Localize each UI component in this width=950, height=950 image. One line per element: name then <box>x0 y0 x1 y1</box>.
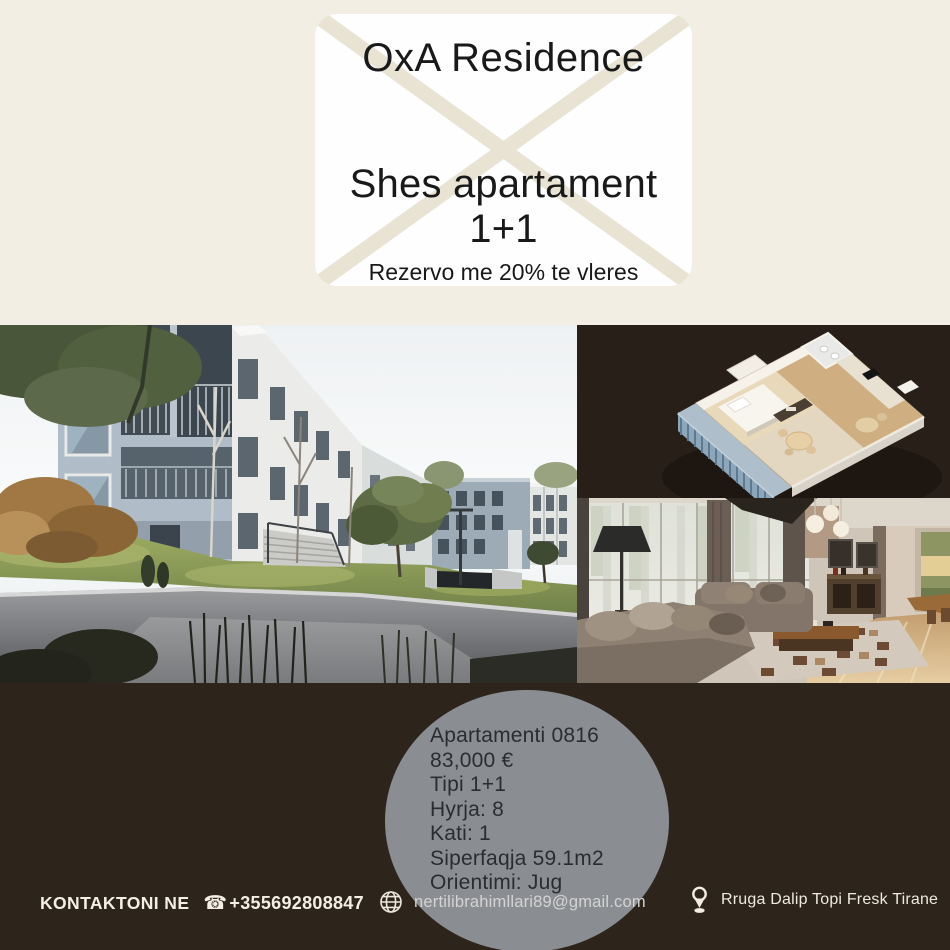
floor-plan-illustration <box>577 325 950 498</box>
phone-number: ☎ +355692808847 <box>203 892 364 915</box>
header-section: OxA Residence Shes apartament 1+1 Rezerv… <box>0 0 950 325</box>
building-exterior-photo <box>0 325 577 683</box>
headline: Shes apartament 1+1 <box>315 162 692 252</box>
listing-type: Tipi 1+1 <box>430 773 604 798</box>
location-pin-icon <box>690 886 709 914</box>
photo-right-column <box>577 325 950 683</box>
living-room-photo <box>577 498 950 683</box>
globe-icon <box>379 890 403 914</box>
envelope-graphic: OxA Residence Shes apartament 1+1 Rezerv… <box>315 14 692 286</box>
email-address: nertilibrahimllari89@gmail.com <box>414 893 646 912</box>
floor-plan-image <box>577 325 950 498</box>
contact-label: KONTAKTONI NE <box>40 893 189 914</box>
brand-title: OxA Residence <box>315 36 692 81</box>
listing-area: Siperfaqja 59.1m2 <box>430 847 604 872</box>
listing-details-text: Apartamenti 0816 83,000 € Tipi 1+1 Hyrja… <box>430 724 604 896</box>
listing-entrance: Hyrja: 8 <box>430 798 604 823</box>
listing-floor: Kati: 1 <box>430 822 604 847</box>
listing-unit: Apartamenti 0816 <box>430 724 604 749</box>
contact-phone-group: KONTAKTONI NE ☎ +355692808847 <box>40 892 364 915</box>
building-exterior-illustration <box>0 325 577 683</box>
phone-number-text: +355692808847 <box>229 893 364 914</box>
phone-icon: ☎ <box>203 892 227 915</box>
photo-collage <box>0 325 950 683</box>
listing-price: 83,000 € <box>430 749 604 774</box>
contact-address-group: Rruga Dalip Topi Fresk Tirane <box>690 886 938 914</box>
promo-text: Rezervo me 20% te vleres <box>315 259 692 286</box>
contact-email-group: nertilibrahimllari89@gmail.com <box>379 890 646 914</box>
footer-section: Apartamenti 0816 83,000 € Tipi 1+1 Hyrja… <box>0 683 950 950</box>
living-room-illustration <box>577 498 950 683</box>
real-estate-flyer: OxA Residence Shes apartament 1+1 Rezerv… <box>0 0 950 950</box>
street-address: Rruga Dalip Topi Fresk Tirane <box>721 891 938 909</box>
